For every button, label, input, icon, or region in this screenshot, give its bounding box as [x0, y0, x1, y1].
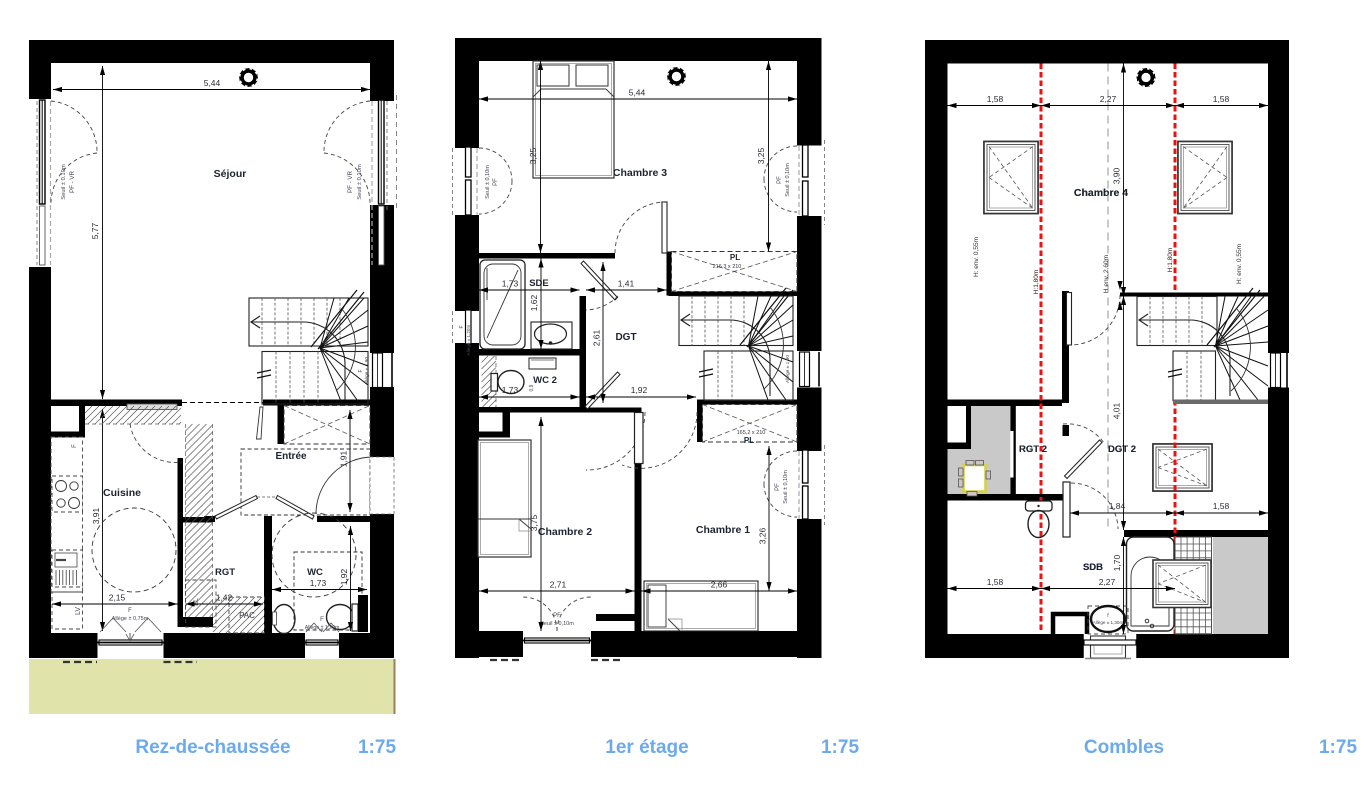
svg-text:1:75: 1:75: [1319, 737, 1357, 758]
svg-text:Chambre 4: Chambre 4: [1074, 187, 1128, 199]
svg-text:3,90: 3,90: [1112, 167, 1122, 184]
svg-text:RGT: RGT: [215, 567, 235, 578]
svg-text:H: env. 0,55m: H: env. 0,55m: [1236, 244, 1243, 284]
svg-text:1:75: 1:75: [358, 737, 396, 758]
svg-text:2,66: 2,66: [711, 580, 728, 590]
svg-text:Chambre 3: Chambre 3: [613, 167, 667, 179]
svg-text:LV: LV: [75, 607, 82, 615]
svg-text:PF - VR: PF - VR: [69, 170, 76, 193]
svg-text:WC: WC: [307, 567, 323, 578]
svg-text:RGT 2: RGT 2: [1019, 444, 1047, 455]
svg-text:Allège ± 1,90: Allège ± 1,90: [364, 357, 370, 385]
svg-text:0,9: 0,9: [529, 384, 535, 391]
svg-text:Seuil ± 0,10m: Seuil ± 0,10m: [485, 165, 491, 199]
svg-text:1,84: 1,84: [1109, 501, 1126, 511]
svg-text:1,58: 1,58: [987, 94, 1004, 104]
svg-text:1,73: 1,73: [310, 578, 327, 588]
svg-text:2,71: 2,71: [550, 580, 567, 590]
svg-text:Seuil ± 0.10m: Seuil ± 0.10m: [357, 164, 363, 200]
svg-text:H: env. 0,55m: H: env. 0,55m: [973, 237, 980, 277]
svg-text:Combles: Combles: [1084, 737, 1164, 758]
svg-text:Seuil ± 0,10m: Seuil ± 0,10m: [785, 163, 791, 197]
svg-text:SDE: SDE: [529, 278, 549, 289]
svg-text:PF: PF: [553, 613, 561, 619]
svg-text:SDB: SDB: [1083, 562, 1103, 573]
svg-text:1,58: 1,58: [1213, 501, 1230, 511]
svg-text:1,58: 1,58: [987, 577, 1004, 587]
svg-text:WC 2: WC 2: [533, 375, 557, 386]
svg-text:Seuil ± 0,10m: Seuil ± 0,10m: [540, 621, 574, 627]
svg-text:1,91: 1,91: [339, 450, 349, 467]
svg-text:3,75: 3,75: [529, 514, 539, 531]
svg-text:F: F: [72, 444, 78, 448]
svg-text:1,92: 1,92: [339, 568, 349, 585]
svg-text:1,42: 1,42: [216, 593, 233, 603]
svg-text:Allège ± 1,90: Allège ± 1,90: [785, 355, 791, 383]
svg-text:F: F: [128, 608, 132, 614]
svg-text:Chambre 1: Chambre 1: [696, 524, 750, 536]
svg-text:2,27: 2,27: [1099, 577, 1116, 587]
svg-text:Cuisine: Cuisine: [103, 487, 141, 499]
svg-text:Allège ± 1,20m: Allège ± 1,20m: [466, 325, 471, 356]
svg-text:H:1,80m: H:1,80m: [1167, 248, 1174, 273]
svg-text:PF - VR: PF - VR: [347, 170, 354, 193]
svg-text:PL: PL: [744, 436, 754, 445]
svg-text:1,41: 1,41: [618, 279, 635, 289]
svg-text:1:75: 1:75: [821, 737, 859, 758]
svg-text:216,3 x 210: 216,3 x 210: [713, 264, 742, 270]
svg-text:PF: PF: [777, 176, 783, 184]
svg-text:2,15: 2,15: [109, 593, 126, 603]
svg-text:Chambre 2: Chambre 2: [538, 526, 592, 538]
svg-text:Entrée: Entrée: [275, 451, 307, 462]
svg-text:1,58: 1,58: [1213, 94, 1230, 104]
svg-text:Seuil ± 0,10m: Seuil ± 0,10m: [783, 470, 789, 504]
svg-text:1,92: 1,92: [631, 385, 648, 395]
svg-text:Séjour: Séjour: [214, 168, 247, 180]
svg-text:5,44: 5,44: [204, 78, 221, 88]
svg-text:Allège ± 0,75m: Allège ± 0,75m: [112, 616, 149, 622]
svg-text:3,91: 3,91: [91, 507, 101, 524]
svg-text:5,44: 5,44: [629, 88, 646, 98]
svg-text:PF: PF: [775, 483, 781, 491]
svg-text:3,26: 3,26: [758, 527, 768, 544]
svg-text:F: F: [459, 325, 465, 328]
svg-text:Allège ± 1,30m: Allège ± 1,30m: [1093, 620, 1124, 625]
svg-text:1,73: 1,73: [502, 385, 519, 395]
svg-text:PL: PL: [730, 253, 740, 262]
svg-text:F: F: [320, 617, 324, 623]
svg-text:1,70: 1,70: [1112, 554, 1122, 571]
svg-text:PF: PF: [493, 178, 499, 186]
svg-text:3,25: 3,25: [528, 147, 538, 164]
svg-text:DGT: DGT: [615, 332, 636, 343]
svg-text:F: F: [358, 369, 364, 372]
svg-text:Seuil ± 0.10m: Seuil ± 0.10m: [61, 164, 67, 200]
svg-text:1,62: 1,62: [529, 294, 539, 311]
svg-text:H env. 2,60m: H env. 2,60m: [1103, 255, 1110, 293]
svg-text:DGT 2: DGT 2: [1108, 444, 1136, 455]
svg-text:3,25: 3,25: [756, 147, 766, 164]
svg-text:5,77: 5,77: [90, 222, 100, 239]
svg-text:PAC: PAC: [239, 611, 255, 620]
svg-text:1,73: 1,73: [502, 279, 519, 289]
svg-text:Rez-de-chaussée: Rez-de-chaussée: [135, 737, 290, 758]
svg-text:2,61: 2,61: [592, 329, 602, 346]
svg-text:H:1,80m: H:1,80m: [1033, 270, 1040, 295]
svg-text:1er étage: 1er étage: [605, 737, 688, 758]
svg-text:2,27: 2,27: [1100, 94, 1117, 104]
svg-text:4,01: 4,01: [1112, 402, 1122, 419]
